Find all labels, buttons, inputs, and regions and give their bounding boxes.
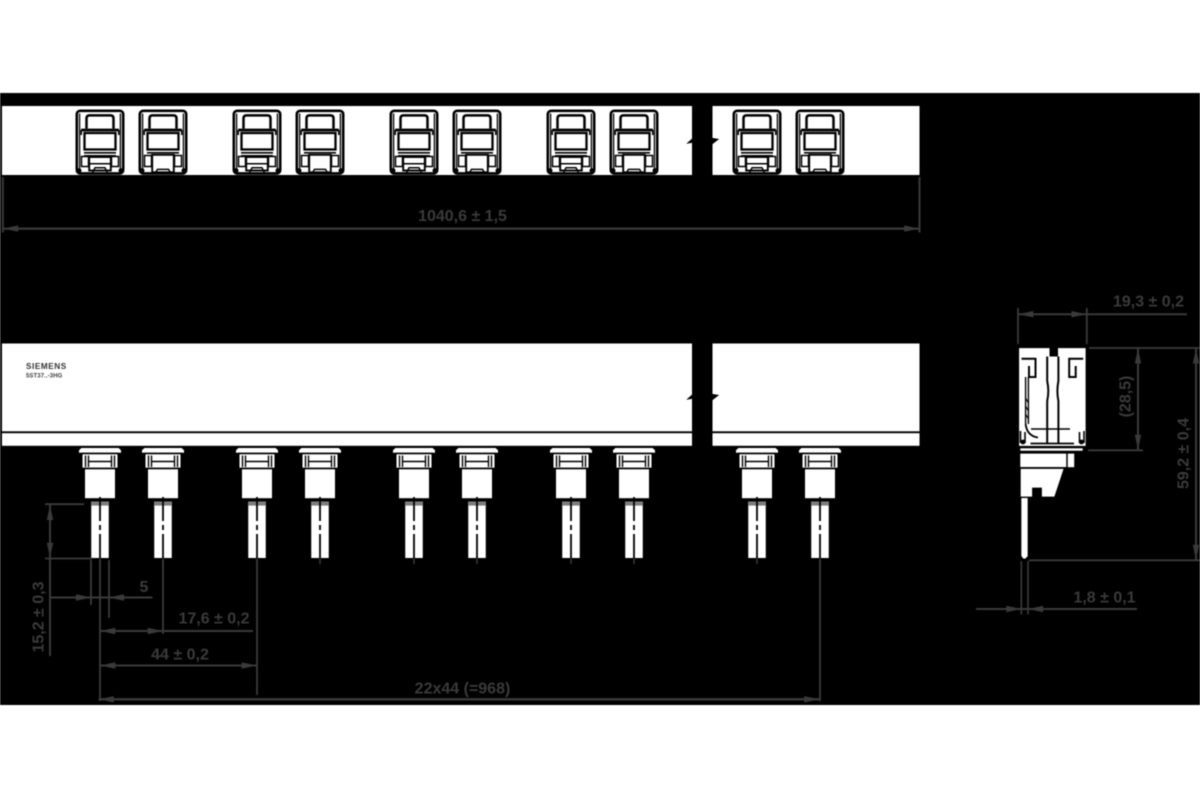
svg-text:15,2 ± 0,3: 15,2 ± 0,3: [31, 581, 48, 652]
svg-text:(28,5): (28,5): [1118, 376, 1135, 418]
svg-text:19,3 ± 0,2: 19,3 ± 0,2: [1113, 294, 1184, 311]
svg-text:5ST37..-3HG: 5ST37..-3HG: [26, 374, 63, 380]
svg-text:22x44 (=968): 22x44 (=968): [415, 681, 511, 698]
svg-text:1,8 ± 0,1: 1,8 ± 0,1: [1073, 589, 1135, 606]
svg-text:17,6 ± 0,2: 17,6 ± 0,2: [178, 611, 249, 628]
svg-text:1040,6 ± 1,5: 1040,6 ± 1,5: [418, 208, 507, 225]
svg-text:5: 5: [140, 579, 149, 596]
svg-text:SIEMENS: SIEMENS: [26, 362, 67, 371]
svg-text:59,2 ± 0,4: 59,2 ± 0,4: [1176, 418, 1193, 489]
svg-text:44 ± 0,2: 44 ± 0,2: [151, 647, 209, 664]
